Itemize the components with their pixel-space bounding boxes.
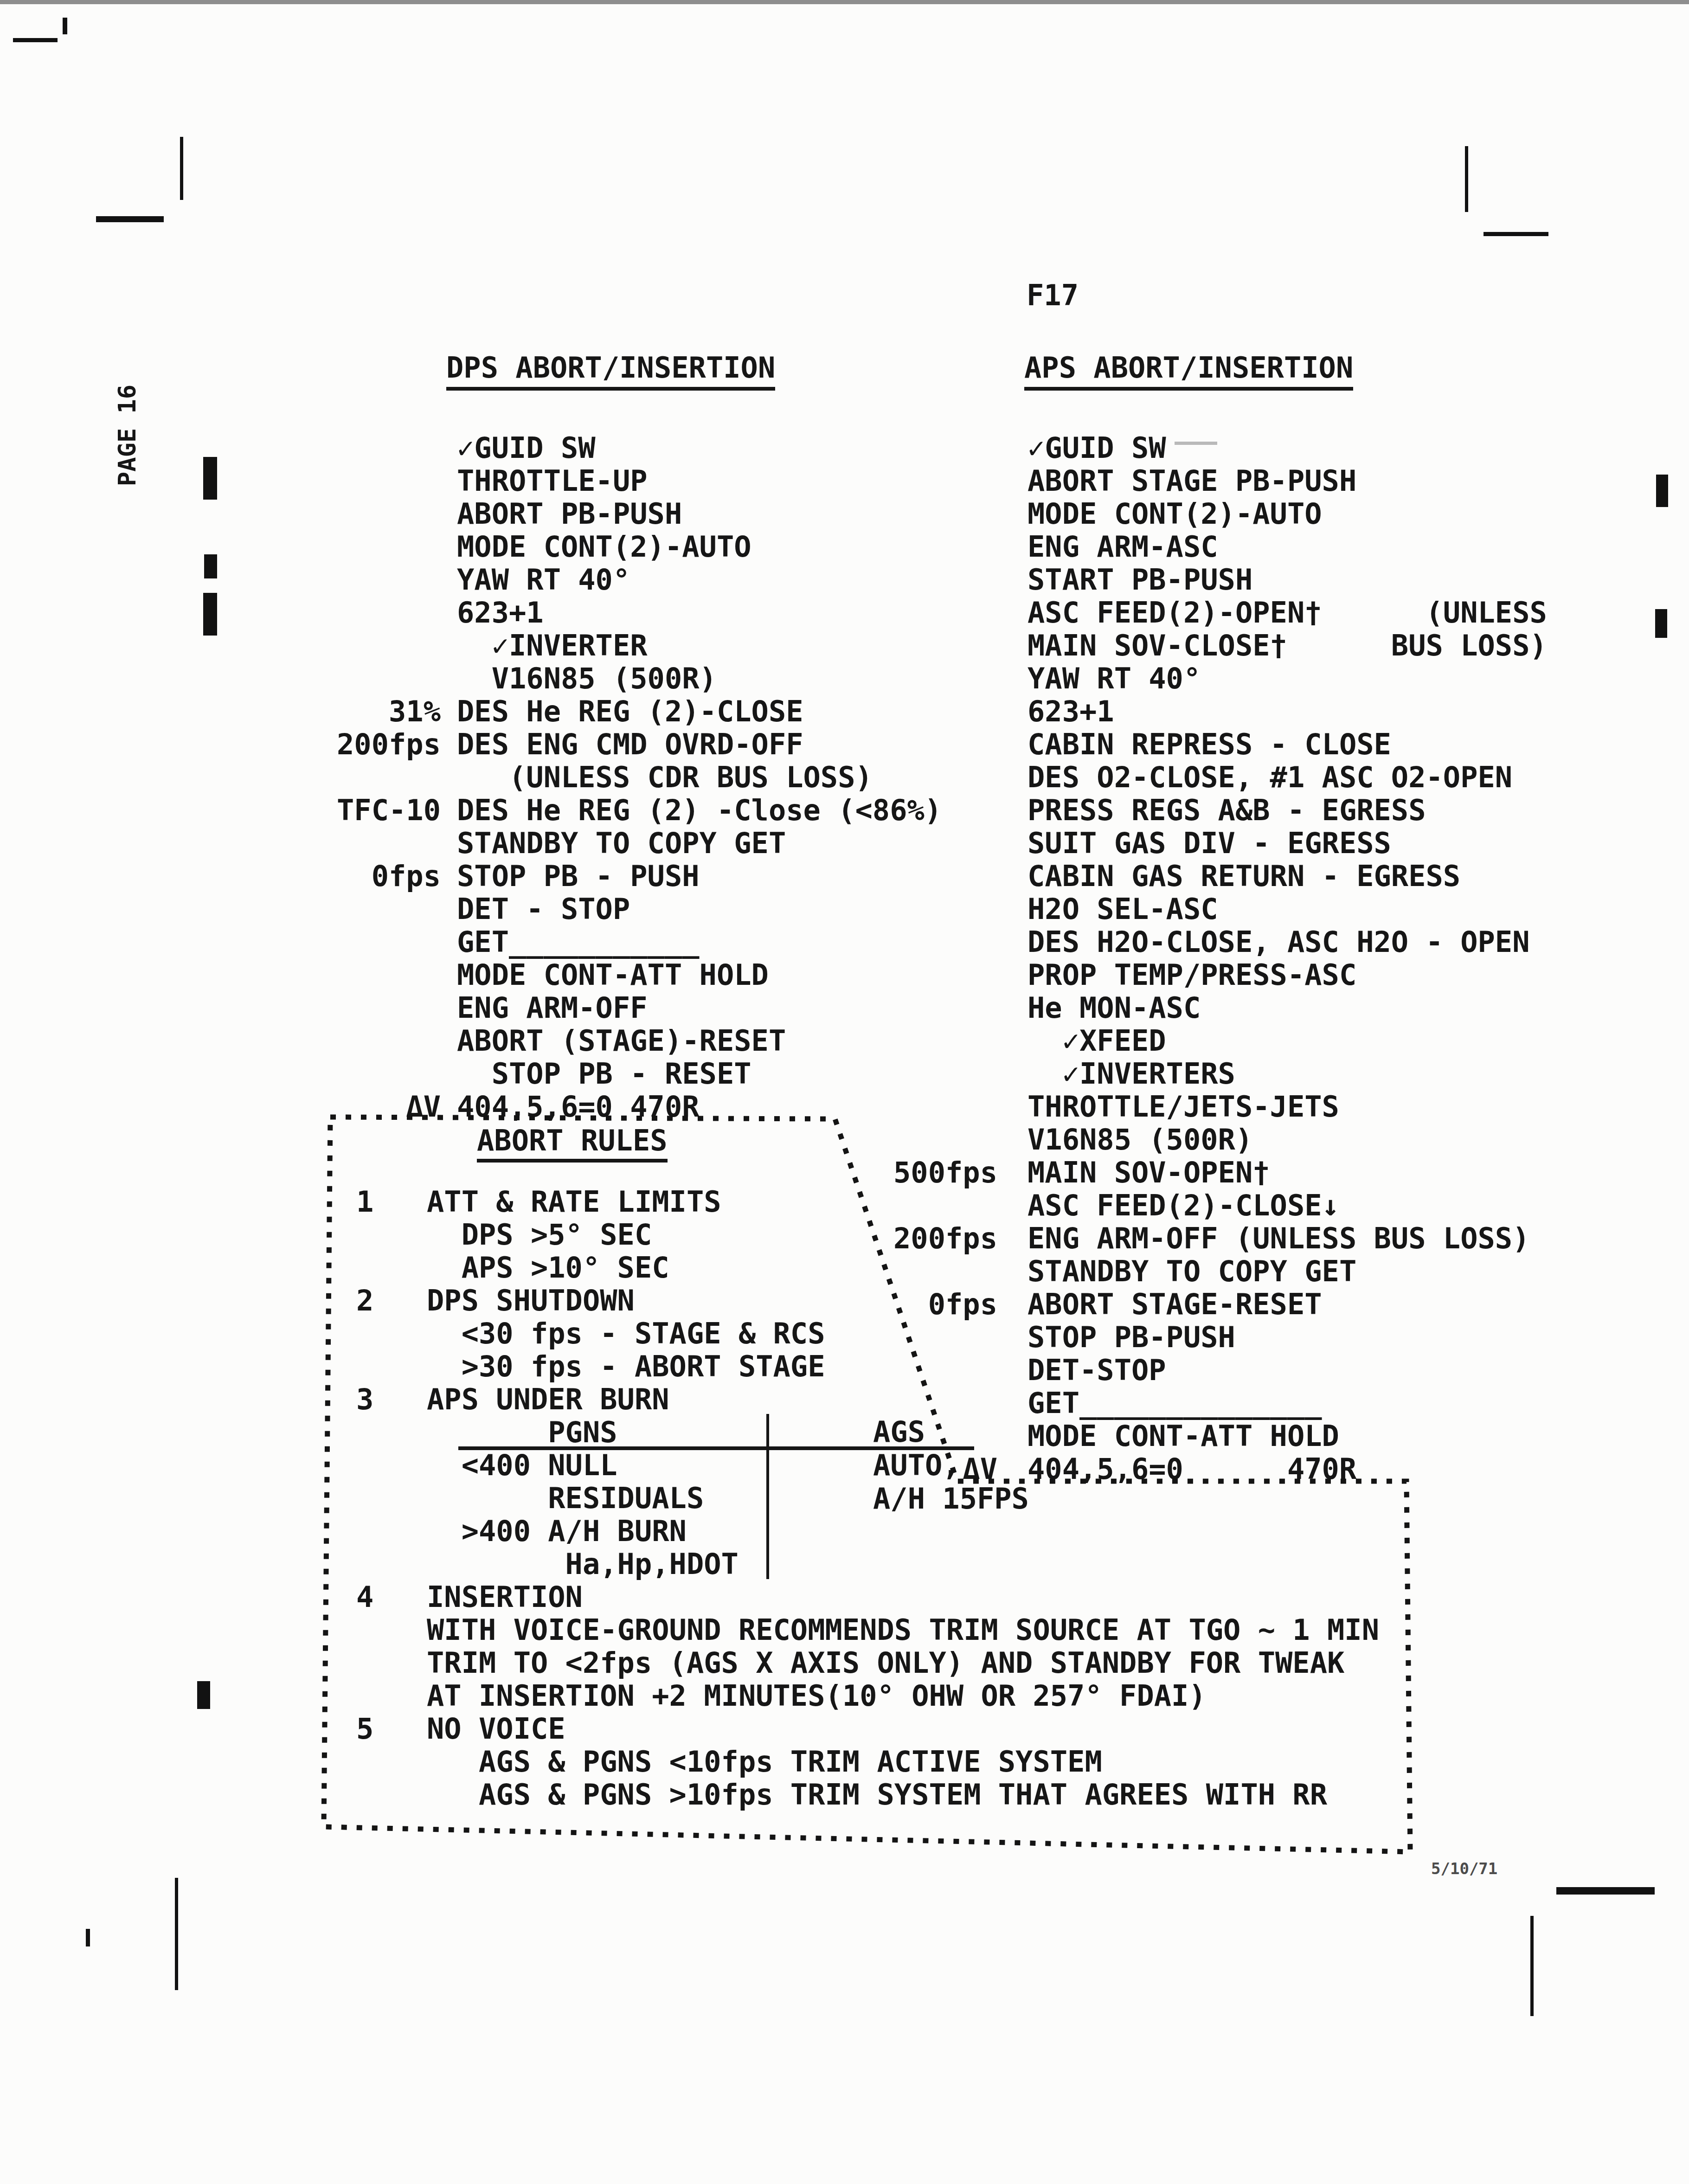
- abort-rule-line: 5NO VOICE: [329, 1712, 1410, 1745]
- rule-text: INSERTION: [427, 1580, 583, 1613]
- abort-rule-line: TRIM TO <2fps (AGS X AXIS ONLY) AND STAN…: [329, 1646, 1410, 1679]
- binder-tab-left-4: [197, 1681, 210, 1709]
- rule-text: DPS SHUTDOWN: [427, 1284, 635, 1317]
- rule-text: TRIM TO <2fps (AGS X AXIS ONLY) AND STAN…: [427, 1646, 1344, 1679]
- abort-rule-line: AGS & PGNS >10fps TRIM SYSTEM THAT AGREE…: [329, 1778, 1410, 1811]
- abort-rule-line: >30 fps - ABORT STAGE: [329, 1350, 1410, 1383]
- abort-rule-line: PGNS: [329, 1416, 1410, 1449]
- abort-rule-line: AT INSERTION +2 MINUTES(10° OHW OR 257° …: [329, 1679, 1410, 1712]
- rule-text: AGS & PGNS >10fps TRIM SYSTEM THAT AGREE…: [427, 1778, 1327, 1811]
- abort-rules-title: ABORT RULES: [477, 1126, 668, 1163]
- ags-cell: A/H 15FPS: [873, 1484, 1029, 1513]
- rule-number: 3: [356, 1383, 373, 1416]
- rule-text: RESIDUALS: [427, 1482, 704, 1515]
- abort-rule-line: APS >10° SEC: [329, 1251, 1410, 1284]
- abort-rule-line: <30 fps - STAGE & RCS: [329, 1317, 1410, 1350]
- rule-text: NO VOICE: [427, 1712, 565, 1745]
- rule-text: <400 NULL: [427, 1449, 617, 1482]
- binder-tab-right-1: [1656, 475, 1668, 507]
- abort-rule-line: Ha,Hp,HDOT: [329, 1548, 1410, 1580]
- abort-rules-list: 1ATT & RATE LIMITS DPS >5° SEC APS >10° …: [329, 1185, 1410, 1811]
- scan-mark-bottom-right-hbar: [1556, 1887, 1655, 1895]
- scan-mark-right-vline: [1465, 146, 1468, 212]
- scan-mark-bottom-left-tick: [86, 1929, 90, 1946]
- rule-text: ATT & RATE LIMITS: [427, 1185, 721, 1218]
- ags-column-header: AGS: [873, 1418, 925, 1446]
- scan-mark-right-hbar: [1483, 232, 1548, 236]
- rule-text: APS >10° SEC: [427, 1251, 669, 1284]
- abort-rules-dotted-border: [0, 0, 1689, 2184]
- rule-text: >400 A/H BURN: [427, 1515, 687, 1548]
- rule-number: 1: [356, 1185, 373, 1218]
- rule-text: AGS & PGNS <10fps TRIM ACTIVE SYSTEM: [427, 1745, 1102, 1778]
- rule-number: 5: [356, 1712, 373, 1745]
- scan-mark-left-hbar: [96, 216, 164, 222]
- abort-rule-line: <400 NULL: [329, 1449, 1410, 1482]
- rule-text: APS UNDER BURN: [427, 1383, 669, 1416]
- binder-tab-left-2: [204, 554, 217, 578]
- scan-mark-bottom-right-vline: [1530, 1916, 1534, 2016]
- rule-text: PGNS: [427, 1416, 617, 1449]
- scanned-checklist-page: F17 PAGE 16 5/10/71 DPS ABORT/INSERTION …: [0, 0, 1689, 2184]
- ags-cell: AUTO,: [873, 1451, 960, 1480]
- scan-mark-left-vline: [180, 137, 183, 200]
- abort-rule-line: >400 A/H BURN: [329, 1515, 1410, 1548]
- abort-rule-line: AGS & PGNS <10fps TRIM ACTIVE SYSTEM: [329, 1745, 1410, 1778]
- rule-text: AT INSERTION +2 MINUTES(10° OHW OR 257° …: [427, 1679, 1206, 1712]
- rule-text: <30 fps - STAGE & RCS: [427, 1317, 825, 1350]
- pgns-ags-table-divider: [766, 1414, 769, 1579]
- scan-mark-top-left-hline: [13, 38, 58, 42]
- abort-rule-line: 2DPS SHUTDOWN: [329, 1284, 1410, 1317]
- binder-tab-right-2: [1655, 609, 1667, 638]
- scan-mark-top-left-tick: [63, 18, 67, 34]
- rule-text: WITH VOICE-GROUND RECOMMENDS TRIM SOURCE…: [427, 1613, 1379, 1646]
- binder-tab-left-1: [203, 457, 217, 500]
- binder-tab-left-3: [203, 593, 217, 636]
- rule-text: Ha,Hp,HDOT: [427, 1548, 739, 1580]
- rule-number: 2: [356, 1284, 373, 1317]
- abort-rule-line: 3APS UNDER BURN: [329, 1383, 1410, 1416]
- abort-rule-line: 1ATT & RATE LIMITS: [329, 1185, 1410, 1218]
- rule-text: DPS >5° SEC: [427, 1218, 652, 1251]
- abort-rule-line: WITH VOICE-GROUND RECOMMENDS TRIM SOURCE…: [329, 1613, 1410, 1646]
- rule-number: 4: [356, 1580, 373, 1613]
- rule-text: >30 fps - ABORT STAGE: [427, 1350, 825, 1383]
- abort-rule-line: RESIDUALS: [329, 1482, 1410, 1515]
- abort-rule-line: 4INSERTION: [329, 1580, 1410, 1613]
- scan-mark-bottom-left-vline: [175, 1878, 178, 1990]
- abort-rule-line: DPS >5° SEC: [329, 1218, 1410, 1251]
